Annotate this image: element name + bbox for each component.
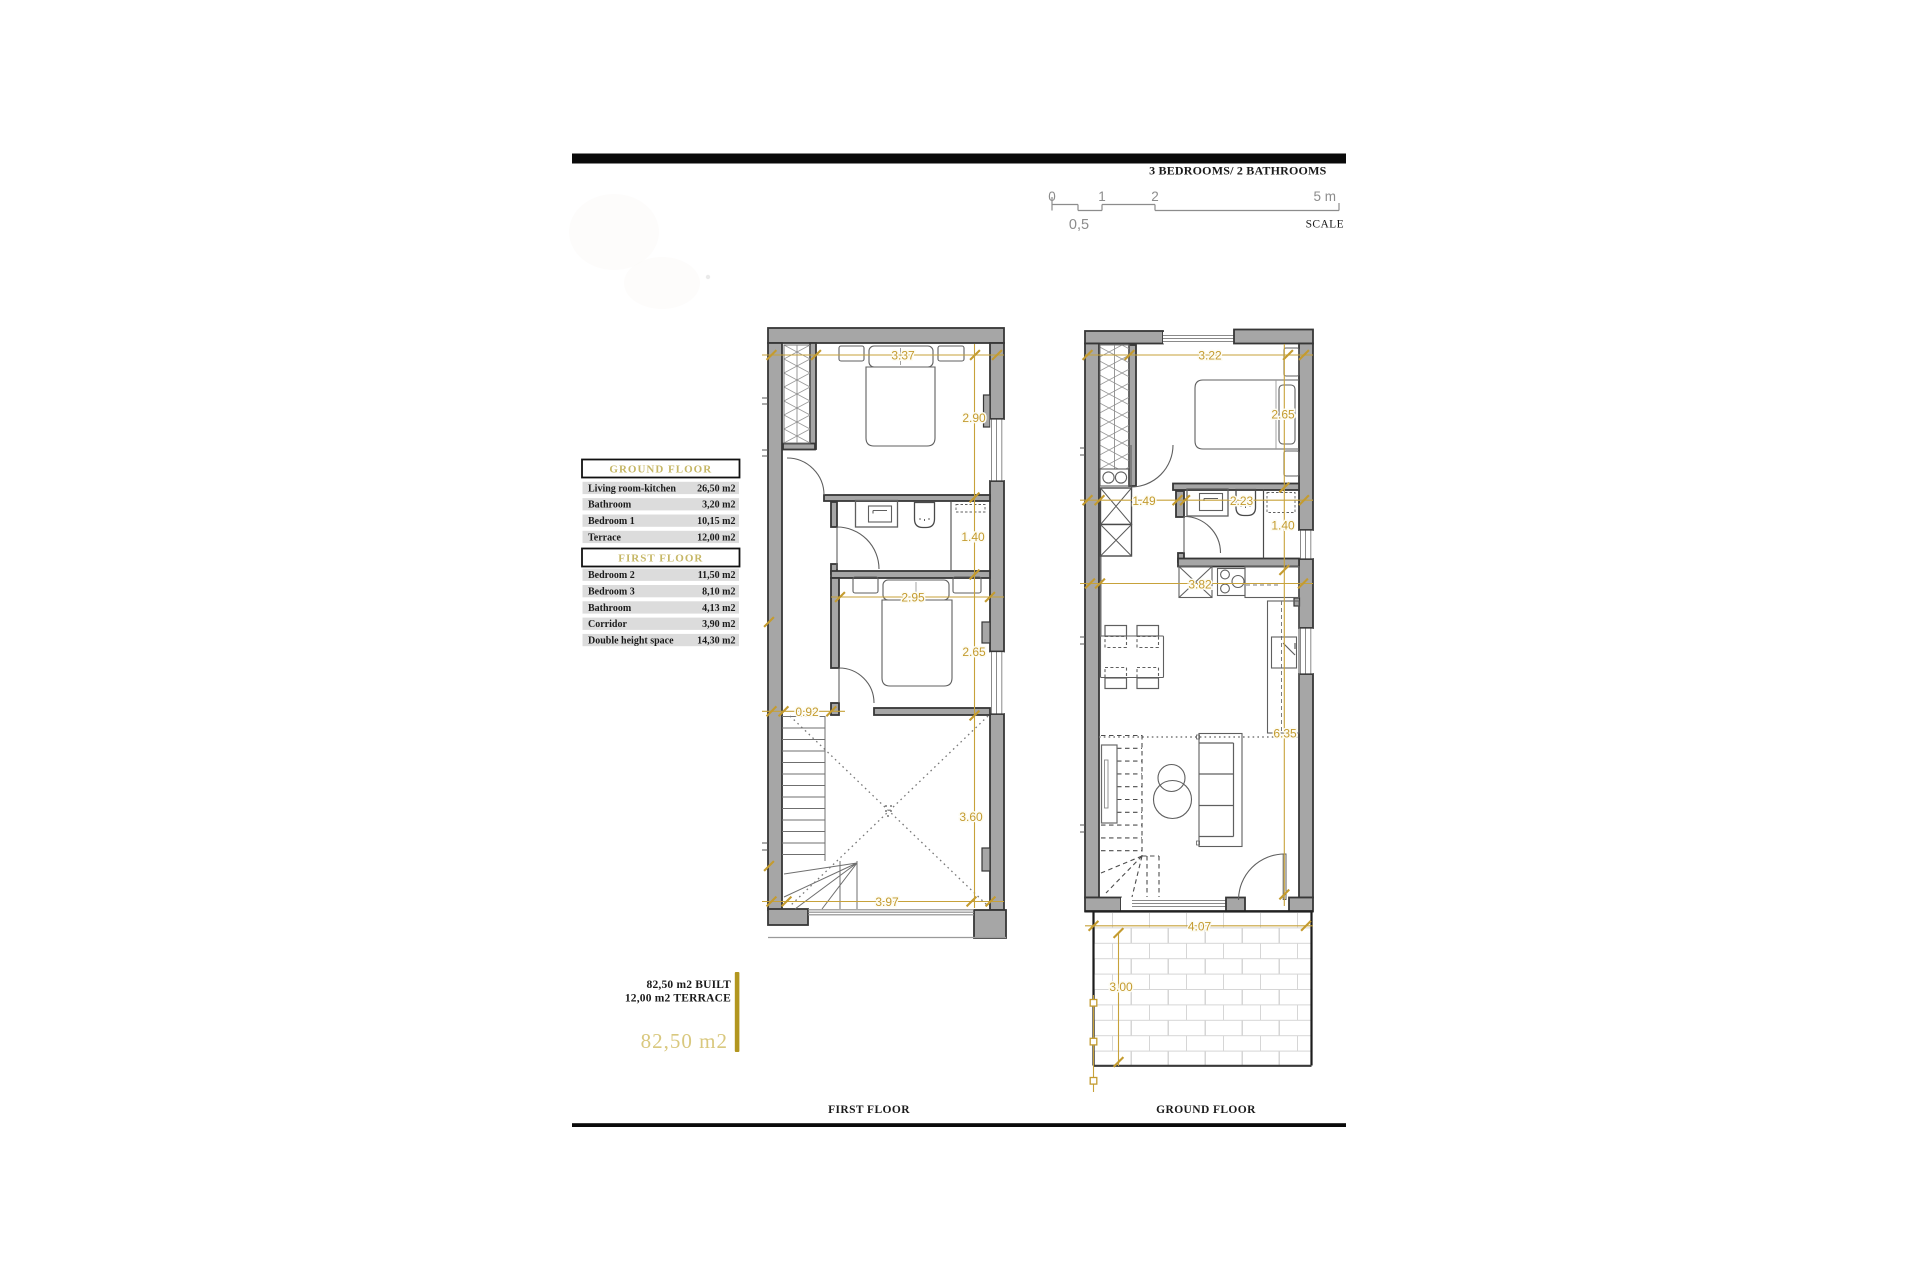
svg-text:2.65: 2.65 [1271,408,1295,422]
svg-text:0.92: 0.92 [795,705,819,719]
svg-text:3.00: 3.00 [1109,980,1133,994]
svg-text:4,13 m2: 4,13 m2 [702,603,735,614]
svg-text:Bathroom: Bathroom [588,500,632,511]
svg-text:8,10 m2: 8,10 m2 [702,587,735,598]
svg-text:FIRST FLOOR: FIRST FLOOR [828,1104,910,1116]
svg-text:26,50 m2: 26,50 m2 [697,483,735,494]
svg-text:3.37: 3.37 [891,349,915,363]
svg-text:Double height space: Double height space [588,636,674,647]
svg-text:10,15 m2: 10,15 m2 [697,516,735,527]
svg-text:GROUND FLOOR: GROUND FLOOR [1156,1104,1256,1116]
svg-text:82,50 m2: 82,50 m2 [641,1029,728,1053]
svg-text:GROUND FLOOR: GROUND FLOOR [609,464,712,476]
svg-text:1.40: 1.40 [961,530,985,544]
svg-text:2: 2 [1151,189,1159,204]
svg-text:2.23: 2.23 [1230,494,1254,508]
svg-text:Corridor: Corridor [588,619,627,630]
svg-text:2.95: 2.95 [901,591,925,605]
svg-text:5 m: 5 m [1313,189,1336,204]
svg-text:Bedroom 2: Bedroom 2 [588,570,635,581]
svg-text:1: 1 [1098,189,1106,204]
svg-text:3,20 m2: 3,20 m2 [702,500,735,511]
svg-text:0,5: 0,5 [1069,217,1089,233]
svg-text:2.90: 2.90 [962,411,986,425]
svg-text:11,50 m2: 11,50 m2 [698,570,736,581]
svg-text:2.65: 2.65 [962,645,986,659]
svg-text:4.07: 4.07 [1188,920,1212,934]
svg-text:12,00 m2 TERRACE: 12,00 m2 TERRACE [625,993,731,1005]
svg-text:3.22: 3.22 [1198,349,1222,363]
svg-text:3.60: 3.60 [959,810,983,824]
svg-text:Living room-kitchen: Living room-kitchen [588,483,676,494]
svg-text:SCALE: SCALE [1306,219,1344,231]
svg-text:3 BEDROOMS/ 2 BATHROOMS: 3 BEDROOMS/ 2 BATHROOMS [1149,164,1327,178]
svg-text:3,90 m2: 3,90 m2 [702,619,735,630]
svg-text:82,50 m2 BUILT: 82,50 m2 BUILT [647,979,732,991]
svg-text:Terrace: Terrace [588,532,622,543]
svg-text:12,00 m2: 12,00 m2 [697,532,735,543]
svg-text:3.82: 3.82 [1188,577,1212,591]
svg-text:14,30 m2: 14,30 m2 [697,636,735,647]
svg-text:1.40: 1.40 [1271,519,1295,533]
svg-text:FIRST FLOOR: FIRST FLOOR [618,553,703,565]
svg-text:Bathroom: Bathroom [588,603,632,614]
svg-text:1.49: 1.49 [1132,494,1156,508]
svg-text:Bedroom 3: Bedroom 3 [588,587,635,598]
svg-text:6.35: 6.35 [1273,727,1297,741]
svg-text:Bedroom 1: Bedroom 1 [588,516,635,527]
svg-text:3.97: 3.97 [875,895,899,909]
